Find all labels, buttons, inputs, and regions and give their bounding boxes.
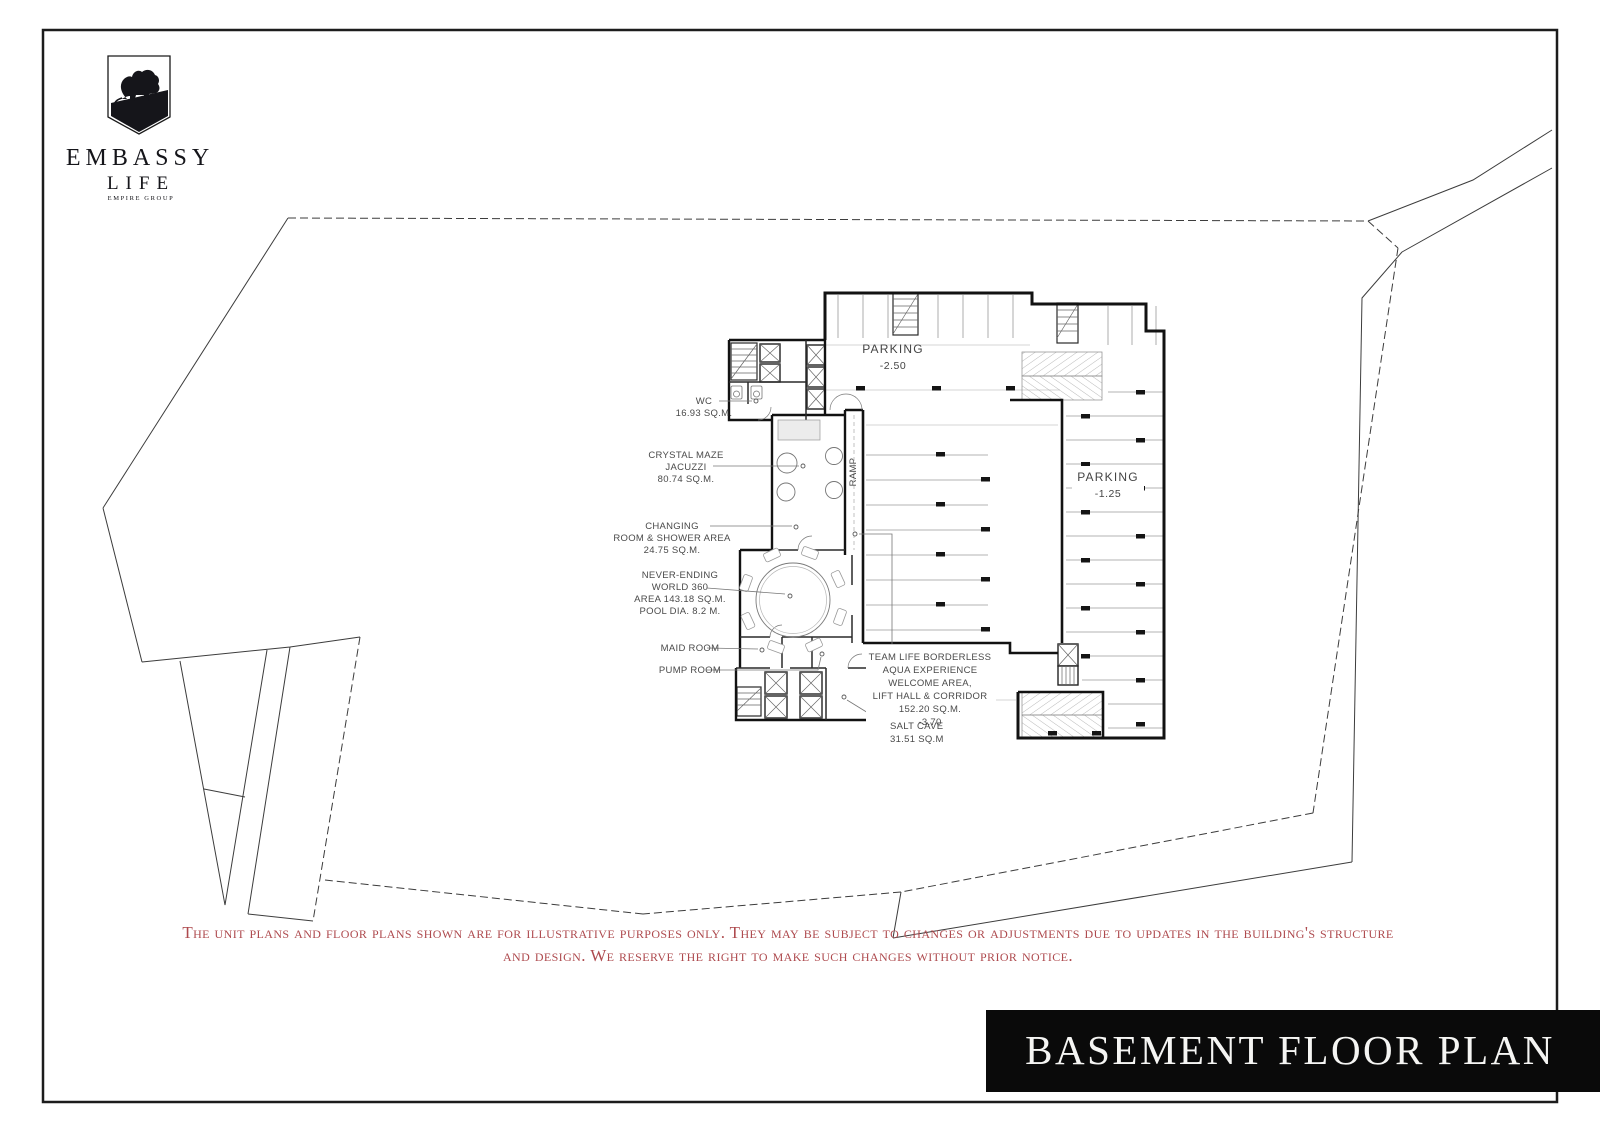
label-parking-right: PARKING — [1077, 470, 1139, 484]
page-title: BASEMENT FLOOR PLAN — [1025, 1027, 1555, 1073]
stair-garage-topleft — [893, 293, 918, 335]
stair-club-top — [731, 343, 757, 380]
logo: EMBASSY LIFE EMPIRE GROUP — [66, 56, 214, 202]
label-parking-right-level: -1.25 — [1095, 488, 1121, 500]
label-salt-cave: SALT CAVE — [890, 721, 943, 732]
jacuzzi-tubs — [777, 448, 843, 502]
label-changing-2: ROOM & SHOWER AREA — [613, 533, 731, 544]
label-welcome-area: 152.20 SQ.M. — [899, 704, 961, 715]
disclaimer-line-1: The unit plans and floor plans shown are… — [182, 923, 1393, 942]
ramp-lower — [1022, 692, 1103, 738]
label-jacuzzi-2: JACUZZI — [665, 462, 706, 473]
label-pool-dia: POOL DIA. 8.2 M. — [640, 606, 721, 617]
label-ramp: RAMP — [848, 458, 859, 487]
label-welcome-4: LIFT HALL & CORRIDOR — [873, 691, 988, 702]
label-pump-room: PUMP ROOM — [659, 665, 721, 676]
ramp-upper — [1022, 352, 1102, 400]
label-pool-2: WORLD 360 — [652, 582, 709, 593]
jacuzzi-room — [777, 420, 843, 501]
logo-brand-text: EMBASSY — [66, 145, 214, 171]
pool-circle — [756, 563, 830, 637]
label-changing: CHANGING — [645, 521, 699, 532]
elevator-shaft — [760, 344, 780, 362]
site-boundary — [103, 130, 1552, 938]
boundary-solid — [103, 130, 1552, 938]
label-wc-area: 16.93 SQ.M. — [676, 408, 733, 419]
label-parking-upper-level: -2.50 — [880, 360, 906, 372]
elevator-shaft — [760, 364, 780, 382]
stalls-middle — [866, 455, 988, 630]
pool-loungers — [739, 546, 847, 654]
stalls-right — [1066, 392, 1164, 728]
boundary-dashed — [288, 218, 1398, 921]
stair-garage-topmid — [1057, 303, 1078, 343]
elevator-shaft — [807, 345, 825, 365]
label-welcome-1: TEAM LIFE BORDERLESS — [869, 652, 992, 663]
label-jacuzzi: CRYSTAL MAZE — [648, 450, 723, 461]
logo-rock — [111, 90, 168, 132]
label-pool: NEVER-ENDING — [642, 570, 718, 581]
pool-inner-circle — [760, 567, 827, 634]
disclaimer: The unit plans and floor plans shown are… — [182, 923, 1393, 965]
logo-group-text: EMPIRE GROUP — [108, 195, 175, 202]
elevator-shaft — [1058, 644, 1078, 666]
floor-plan-canvas: EMBASSY LIFE EMPIRE GROUP — [0, 0, 1600, 1132]
elevator-shaft — [765, 672, 787, 694]
elevator-shaft — [800, 672, 822, 694]
label-welcome-2: AQUA EXPERIENCE — [883, 665, 978, 676]
wc-fixtures — [731, 386, 762, 399]
label-maid-room: MAID ROOM — [661, 643, 720, 654]
brochure-page: EMBASSY LIFE EMPIRE GROUP — [0, 0, 1600, 1132]
label-changing-area: 24.75 SQ.M. — [644, 545, 701, 556]
label-jacuzzi-area: 80.74 SQ.M. — [658, 474, 715, 485]
label-pool-area: AREA 143.18 SQ.M. — [634, 594, 726, 605]
title-banner: BASEMENT FLOOR PLAN — [986, 1010, 1600, 1092]
jacuzzi-vanity — [778, 420, 820, 440]
label-parking-upper: PARKING — [862, 342, 924, 356]
stair-lift-right — [1058, 666, 1078, 685]
elevator-shaft — [807, 389, 825, 409]
label-wc: WC — [696, 396, 712, 407]
elevator-shaft — [800, 696, 822, 718]
logo-sub-text: LIFE — [107, 173, 175, 194]
label-salt-area: 31.51 SQ.M — [890, 734, 944, 745]
disclaimer-line-2: and design. We reserve the right to make… — [503, 946, 1073, 965]
label-welcome-3: WELCOME AREA, — [888, 678, 972, 689]
elevator-shaft — [765, 696, 787, 718]
stair-club-bottom — [737, 687, 761, 716]
pool-area — [739, 546, 847, 654]
elevator-shaft — [807, 367, 825, 387]
